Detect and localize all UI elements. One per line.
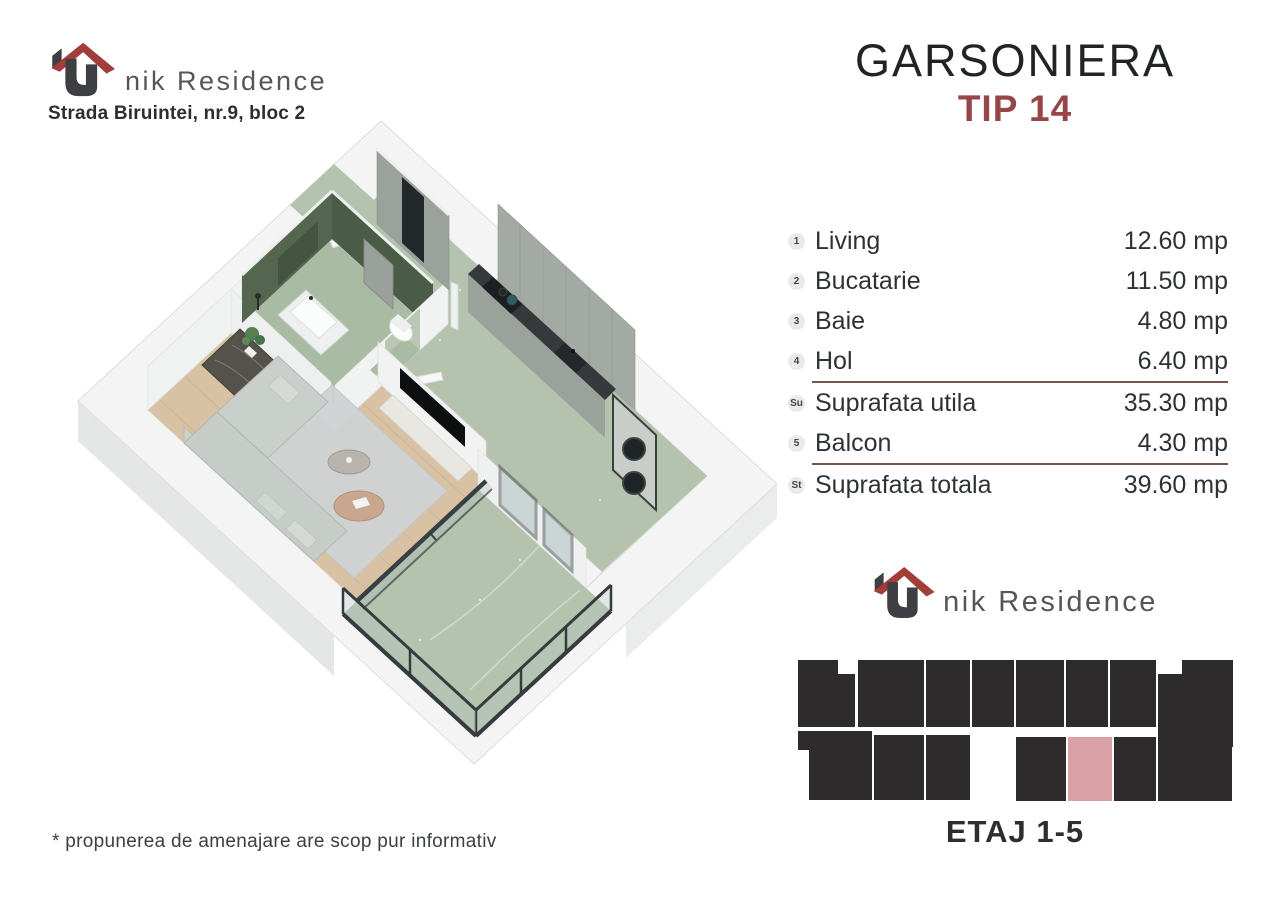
area-badge: 5 — [788, 435, 805, 452]
area-row-hol: 4 Hol 6.40 mp — [788, 341, 1228, 381]
area-row-bucatarie: 2 Bucatarie 11.50 mp — [788, 261, 1228, 301]
area-label: Suprafata totala — [815, 471, 992, 500]
area-value: 11.50 mp — [1126, 267, 1228, 296]
dryer-drum — [623, 438, 645, 460]
highlighted-unit — [1068, 737, 1112, 801]
brand-name: nik Residence — [943, 588, 1158, 620]
washer-drum — [623, 472, 645, 494]
area-row-suprafata-totala: St Suprafata totala 39.60 mp — [788, 465, 1228, 505]
kitchen-door — [451, 282, 458, 330]
area-badge: 4 — [788, 353, 805, 370]
page-title: GARSONIERA — [790, 36, 1240, 86]
area-label: Baie — [815, 307, 865, 336]
area-badge: 3 — [788, 313, 805, 330]
building-units — [798, 660, 1233, 801]
floor-range-label: ETAJ 1-5 — [790, 814, 1240, 850]
area-label: Balcon — [815, 429, 891, 458]
unit-type-label: TIP 14 — [790, 88, 1240, 130]
area-value: 4.30 mp — [1138, 429, 1228, 458]
area-label: Living — [815, 227, 880, 256]
coffee-table — [328, 450, 370, 474]
area-label: Suprafata utila — [815, 389, 976, 418]
area-value: 6.40 mp — [1138, 347, 1228, 376]
area-badge: Su — [788, 395, 805, 412]
area-value: 12.60 mp — [1124, 227, 1228, 256]
area-value: 39.60 mp — [1124, 471, 1228, 500]
brand-footer: nik Residence — [790, 564, 1240, 620]
area-badge: St — [788, 477, 805, 494]
areas-table: 1 Living 12.60 mp 2 Bucatarie 11.50 mp 3… — [788, 221, 1228, 505]
floorplan-3d-render — [60, 95, 790, 810]
disclaimer-note: * propunerea de amenajare are scop pur i… — [52, 831, 497, 853]
unit-title-block: GARSONIERA TIP 14 — [790, 36, 1240, 130]
unik-residence-logo-icon — [872, 564, 940, 620]
area-label: Hol — [815, 347, 853, 376]
area-badge: 2 — [788, 273, 805, 290]
area-value: 4.80 mp — [1138, 307, 1228, 336]
brand-name: nik Residence — [125, 68, 327, 98]
area-row-living: 1 Living 12.60 mp — [788, 221, 1228, 261]
area-label: Bucatarie — [815, 267, 921, 296]
unik-residence-logo-icon — [48, 40, 122, 98]
area-value: 35.30 mp — [1124, 389, 1228, 418]
area-badge: 1 — [788, 233, 805, 250]
area-row-baie: 3 Baie 4.80 mp — [788, 301, 1228, 341]
building-floor-diagram — [796, 658, 1237, 804]
area-row-balcon: 5 Balcon 4.30 mp — [788, 423, 1228, 463]
side-table — [334, 491, 384, 521]
area-row-suprafata-utila: Su Suprafata utila 35.30 mp — [788, 383, 1228, 423]
